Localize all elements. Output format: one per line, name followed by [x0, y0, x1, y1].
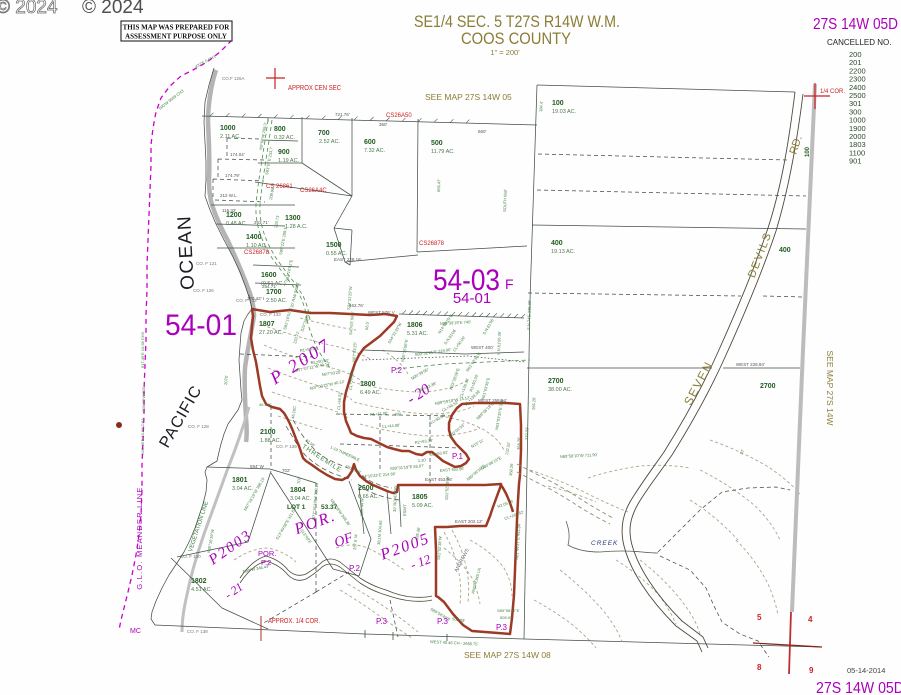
- svg-text:© 2024: © 2024: [0, 0, 58, 18]
- svg-text:721.76': 721.76': [335, 112, 350, 117]
- svg-text:OCEAN: OCEAN: [174, 214, 199, 290]
- svg-text:174.79': 174.79': [225, 173, 240, 178]
- svg-text:S01°52'38"W: S01°52'38"W: [436, 536, 443, 560]
- svg-text:38.00 AC.: 38.00 AC.: [548, 387, 573, 393]
- svg-text:- 12: - 12: [408, 551, 433, 572]
- svg-text:CL+44.88': CL+44.88': [382, 422, 401, 429]
- svg-text:N89°58'10"W 711.90': N89°58'10"W 711.90': [560, 452, 598, 459]
- svg-text:4.51 AC.: 4.51 AC.: [191, 587, 213, 593]
- svg-text:1806: 1806: [407, 322, 423, 329]
- svg-text:ANDREWS LN: ANDREWS LN: [470, 567, 482, 594]
- svg-text:CO. F 126: CO. F 126: [193, 288, 214, 293]
- svg-text:1801: 1801: [232, 477, 248, 484]
- svg-text:1400: 1400: [246, 234, 262, 241]
- svg-text:APPROX CEN SEC: APPROX CEN SEC: [288, 83, 341, 92]
- svg-text:F: F: [505, 276, 514, 292]
- svg-text:27S 14W 05D: 27S 14W 05D: [813, 16, 898, 33]
- svg-text:POR.: POR.: [258, 549, 276, 558]
- svg-text:94°10'23"E 214.66': 94°10'23"E 214.66': [362, 471, 396, 479]
- svg-text:800: 800: [274, 126, 286, 133]
- svg-text:N07°03'25"W 40.12': N07°03'25"W 40.12': [309, 379, 345, 391]
- svg-text:617.46'E 10.68 CH3: 617.46'E 10.68 CH3: [140, 331, 145, 368]
- svg-text:N89°W 346.44': N89°W 346.44': [242, 563, 270, 574]
- svg-text:N03°35'06"E: N03°35'06"E: [448, 367, 461, 390]
- svg-text:N89°39'19"E 740': N89°39'19"E 740': [440, 319, 472, 326]
- svg-text:1700: 1700: [266, 289, 282, 296]
- svg-text:EAST 202.12': EAST 202.12': [455, 519, 483, 524]
- svg-text:ST: ST: [738, 448, 745, 455]
- svg-text:N0°07'W 208.3': N0°07'W 208.3': [258, 122, 268, 150]
- svg-text:S81°16'51"E: S81°16'51"E: [284, 259, 294, 282]
- svg-text:2100: 2100: [260, 429, 276, 436]
- svg-text:CL+160.52': CL+160.52': [504, 509, 525, 521]
- svg-text:1300: 1300: [285, 215, 301, 222]
- svg-text:1/4 COR.: 1/4 COR.: [820, 89, 845, 95]
- svg-text:0.32 AC.: 0.32 AC.: [274, 135, 296, 141]
- svg-text:9: 9: [809, 666, 814, 675]
- svg-text:N07°03'25": N07°03'25": [321, 369, 342, 377]
- svg-text:EAST 228.16': EAST 228.16': [334, 257, 362, 262]
- svg-text:COOS COUNTY: COOS COUNTY: [461, 29, 571, 48]
- svg-text:1500: 1500: [326, 242, 342, 249]
- svg-text:46.10C: 46.10C: [259, 402, 272, 407]
- svg-text:1800: 1800: [360, 381, 376, 388]
- svg-text:5.09 AC.: 5.09 AC.: [412, 503, 434, 509]
- svg-text:3.04 AC.: 3.04 AC.: [290, 496, 312, 502]
- svg-text:CO. F 139: CO. F 139: [276, 444, 297, 449]
- svg-text:N89°06'19"E: N89°06'19"E: [480, 455, 502, 471]
- svg-text:P.3: P.3: [376, 617, 388, 626]
- svg-text:© 2024: © 2024: [82, 0, 144, 18]
- svg-text:212 W.L.: 212 W.L.: [220, 193, 238, 198]
- svg-text:MC: MC: [130, 628, 141, 635]
- svg-text:19.03 AC.: 19.03 AC.: [552, 109, 577, 115]
- svg-text:ANDREWS: ANDREWS: [453, 547, 471, 573]
- svg-text:2.50 AC.: 2.50 AC.: [266, 298, 288, 304]
- svg-text:CS26878: CS26878: [419, 241, 445, 247]
- svg-text:S89°31'19"E 65.97': S89°31'19"E 65.97': [390, 463, 425, 471]
- svg-text:30' ROADWAY: 30' ROADWAY: [392, 485, 398, 512]
- svg-text:PACIFIC: PACIFIC: [157, 383, 206, 451]
- svg-text:656.47': 656.47': [436, 179, 441, 192]
- svg-text:505.09': 505.09': [500, 615, 513, 620]
- svg-text:APPROX. 1/4 COR.: APPROX. 1/4 COR.: [268, 616, 320, 625]
- svg-text:1807: 1807: [259, 321, 275, 328]
- svg-text:N01°03'35"E: N01°03'35"E: [480, 377, 491, 401]
- svg-text:266.26': 266.26': [531, 397, 536, 410]
- svg-text:P. 2: P. 2: [350, 367, 356, 375]
- svg-text:P.3: P.3: [496, 623, 508, 632]
- svg-text:1805: 1805: [412, 494, 428, 501]
- svg-text:S34°31'25"W: S34°31'25"W: [387, 321, 403, 344]
- svg-text:1000: 1000: [220, 125, 236, 132]
- svg-text:505.09': 505.09': [452, 616, 466, 623]
- svg-text:100: 100: [552, 100, 564, 107]
- svg-text:174.04': 174.04': [230, 152, 245, 157]
- svg-text:S.N.61'06 36': S.N.61'06 36': [496, 331, 502, 355]
- svg-text:368.26': 368.26': [516, 437, 521, 450]
- svg-text:900: 900: [278, 149, 290, 156]
- svg-text:1-10 THREEMILE: 1-10 THREEMILE: [330, 444, 361, 462]
- svg-text:CO. F 128: CO. F 128: [188, 424, 209, 429]
- svg-text:N15°11': N15°11': [470, 437, 485, 448]
- svg-text:5: 5: [757, 613, 762, 622]
- svg-text:1.20': 1.20': [418, 457, 427, 463]
- svg-text:254.71': 254.71': [262, 284, 277, 289]
- svg-text:CO. F 133: CO. F 133: [260, 312, 281, 317]
- svg-text:7.32 AC.: 7.32 AC.: [364, 148, 386, 154]
- svg-text:400: 400: [551, 240, 563, 247]
- svg-text:S4.74'E 66.5': S4.74'E 66.5': [348, 311, 355, 335]
- svg-text:2600: 2600: [358, 485, 374, 492]
- svg-text:CO. F 138: CO. F 138: [187, 629, 208, 634]
- svg-text:208.98': 208.98': [268, 186, 275, 200]
- svg-text:5.31 AC.: 5.31 AC.: [407, 331, 429, 337]
- svg-text:100: 100: [805, 146, 811, 157]
- svg-text:1200: 1200: [226, 212, 242, 219]
- svg-text:S01°52'38"W: S01°52'38"W: [444, 476, 450, 500]
- svg-text:SEE MAP 27S 14W 05: SEE MAP 27S 14W 05: [425, 92, 512, 102]
- svg-text:1804: 1804: [290, 487, 306, 494]
- svg-text:1.19 AC.: 1.19 AC.: [278, 158, 300, 164]
- svg-text:500'W 9999 CH3: 500'W 9999 CH3: [158, 88, 186, 111]
- svg-text:3.04 AC.: 3.04 AC.: [232, 486, 254, 492]
- svg-text:184.4': 184.4': [538, 101, 544, 112]
- svg-text:4: 4: [808, 615, 813, 624]
- svg-text:CS26878: CS26878: [244, 250, 270, 256]
- svg-text:19.13 AC.: 19.13 AC.: [551, 249, 576, 255]
- svg-text:660': 660': [478, 129, 487, 134]
- svg-text:S00 30'W 500: S00 30'W 500: [141, 386, 146, 412]
- svg-text:CL+50.00': CL+50.00': [452, 335, 467, 353]
- svg-text:30' R/W ESMT: 30' R/W ESMT: [289, 281, 300, 308]
- svg-text:702': 702': [296, 476, 302, 484]
- svg-text:ASSESSMENT PURPOSE ONLY: ASSESSMENT PURPOSE ONLY: [125, 33, 227, 41]
- svg-text:27S 14W 05D: 27S 14W 05D: [816, 680, 901, 695]
- svg-text:DEVILS: DEVILS: [746, 230, 774, 279]
- svg-text:66.5': 66.5': [364, 321, 370, 330]
- svg-text:CANCELLED NO.: CANCELLED NO.: [827, 38, 891, 47]
- svg-text:368.26': 368.26': [508, 462, 514, 476]
- svg-text:CO. F 132: CO. F 132: [236, 298, 257, 303]
- svg-text:GL+53.02': GL+53.02': [429, 449, 448, 457]
- svg-text:2700: 2700: [548, 378, 564, 385]
- svg-text:SOUTH 658': SOUTH 658': [502, 189, 508, 212]
- svg-text:R2+93.38': R2+93.38': [414, 437, 433, 445]
- svg-text:CL+56.52': CL+56.52': [336, 391, 343, 410]
- svg-text:8: 8: [757, 663, 762, 672]
- svg-text:N17 46'E 10.66 CH3: N17 46'E 10.66 CH3: [140, 418, 145, 455]
- svg-text:S89°52'21"E 319.96': S89°52'21"E 319.96': [414, 347, 451, 357]
- svg-text:P.2: P.2: [349, 564, 361, 573]
- svg-text:CO. F 121: CO. F 121: [196, 261, 217, 266]
- svg-text:232.32': 232.32': [504, 441, 511, 455]
- svg-text:1802: 1802: [191, 578, 207, 585]
- svg-text:N05°35'06": N05°35'06": [410, 366, 430, 381]
- svg-text:G.L.O. MEANDER LINE: G.L.O. MEANDER LINE: [135, 486, 144, 589]
- svg-text:CS26A4C: CS26A4C: [300, 188, 327, 194]
- svg-text:360': 360': [379, 122, 388, 127]
- svg-text:54-01: 54-01: [453, 290, 491, 307]
- svg-text:700: 700: [318, 130, 330, 137]
- svg-text:THIS MAP WAS PREPARED FOR: THIS MAP WAS PREPARED FOR: [123, 24, 231, 32]
- svg-text:702': 702': [282, 468, 291, 473]
- svg-text:1.10 AC.: 1.10 AC.: [246, 243, 268, 249]
- svg-text:SEE MAP 27S 14W 08: SEE MAP 27S 14W 08: [464, 650, 551, 660]
- svg-text:1" = 200': 1" = 200': [490, 48, 520, 57]
- svg-text:ESM'T: ESM'T: [402, 503, 407, 516]
- svg-text:S.N.61'06: S.N.61'06: [482, 317, 495, 335]
- svg-text:P.1: P.1: [452, 452, 464, 461]
- svg-text:46.10C: 46.10C: [290, 405, 297, 419]
- svg-text:2700: 2700: [760, 383, 776, 390]
- svg-text:1600: 1600: [261, 272, 277, 279]
- svg-text:400': 400': [394, 411, 402, 417]
- svg-text:SEVEN: SEVEN: [681, 359, 716, 408]
- svg-text:2.52 AC.: 2.52 AC.: [319, 139, 341, 145]
- svg-text:11.79 AC.: 11.79 AC.: [431, 149, 455, 155]
- svg-text:257.6' W: 257.6' W: [352, 534, 358, 550]
- svg-text:54-01: 54-01: [165, 309, 237, 342]
- svg-text:232.32': 232.32': [524, 427, 529, 440]
- svg-text:116.32': 116.32': [222, 208, 236, 213]
- svg-text:600: 600: [364, 139, 376, 146]
- svg-text:WEST 400': WEST 400': [471, 345, 494, 350]
- svg-text:CO. F 130: CO. F 130: [180, 554, 201, 559]
- svg-text:6.49 AC.: 6.49 AC.: [360, 390, 382, 396]
- svg-text:594' W: 594' W: [250, 464, 265, 469]
- svg-text:253.71': 253.71': [254, 220, 269, 225]
- svg-text:27.20 AC.: 27.20 AC.: [259, 330, 284, 336]
- svg-text:400: 400: [779, 247, 791, 254]
- svg-text:- 21: - 21: [222, 580, 246, 602]
- svg-text:500: 500: [431, 140, 443, 147]
- svg-text:R1+31.06': R1+31.06': [370, 410, 389, 417]
- svg-text:S89°58'42"E: S89°58'42"E: [497, 608, 520, 613]
- svg-text:0.48 AC.: 0.48 AC.: [226, 221, 248, 227]
- svg-text:2.11 AC.: 2.11 AC.: [220, 134, 241, 140]
- svg-text:S05°12'E 208.1': S05°12'E 208.1': [278, 226, 288, 255]
- svg-text:CREEK: CREEK: [591, 540, 618, 547]
- svg-text:437'E 5 CH3: 437'E 5 CH3: [194, 54, 217, 69]
- svg-text:SEE MAP 27S 14W: SEE MAP 27S 14W: [825, 351, 835, 426]
- svg-text:05-14-2014: 05-14-2014: [847, 666, 885, 675]
- svg-text:901: 901: [849, 157, 862, 166]
- svg-text:N01°44'27"E 453.84': N01°44'27"E 453.84': [514, 523, 522, 560]
- svg-text:CO.F 126A: CO.F 126A: [222, 76, 245, 81]
- svg-text:WEST 40.46 CH - 2668.75': WEST 40.46 CH - 2668.75': [430, 639, 479, 647]
- svg-text:S.N.81'06: S.N.81'06: [443, 328, 458, 346]
- svg-text:S01°44'W: S01°44'W: [359, 498, 365, 516]
- svg-text:1.28 A.C.: 1.28 A.C.: [285, 224, 308, 230]
- svg-text:S01°57'E 233.7': S01°57'E 233.7': [264, 146, 274, 175]
- svg-text:S.N.74'E 235.36': S.N.74'E 235.36': [526, 300, 532, 330]
- svg-text:EAST 453.96': EAST 453.96': [440, 466, 465, 473]
- svg-text:WEST 576' V: WEST 576' V: [368, 310, 395, 315]
- svg-text:CS26A50: CS26A50: [386, 113, 412, 119]
- svg-text:P.2: P.2: [391, 366, 403, 375]
- svg-text:WEST 228.94': WEST 228.94': [736, 362, 765, 367]
- svg-text:38.1M 304.65': 38.1M 304.65': [376, 519, 383, 545]
- svg-text:2070': 2070': [223, 375, 229, 385]
- svg-text:RD.: RD.: [788, 134, 805, 156]
